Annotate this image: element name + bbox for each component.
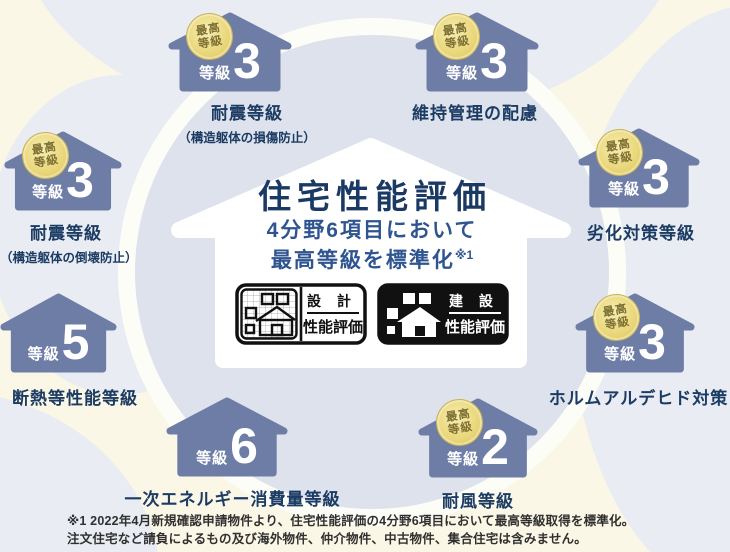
house-maintenance: 最高等級 等級3 [415, 12, 539, 92]
grade-text: 等級3 [4, 155, 122, 205]
construction-mark-category: 建 設 [449, 293, 499, 309]
design-mark-label: 性能評価 [303, 318, 363, 336]
subtitle-line2: 最高等級を標準化 [271, 249, 455, 272]
house-energy: 等級6 [166, 397, 288, 477]
footnote-reference: ※1 [455, 248, 473, 262]
house-label-energy: 一次エネルギー消費量等級 [115, 485, 350, 510]
house-seismic-damage: 最高等級 等級3 [168, 12, 292, 92]
house-label-insulation: 断熱等性能等級 [0, 384, 150, 409]
house-wind: 最高等級 等級2 [418, 398, 538, 478]
house-label-degradation: 劣化対策等級 [566, 219, 716, 244]
house-label-seismic-collapse: 耐震等級 （構造躯体の倒壊防止） [0, 219, 132, 266]
background-graphic [0, 0, 730, 552]
footnote: ※1 2022年4月新規確認申請物件より、住宅性能評価の4分野6項目において最高… [67, 513, 707, 549]
page-title: 住宅性能評価 [221, 170, 523, 218]
grade-text: 等級2 [418, 422, 538, 472]
grade-text: 等級3 [575, 317, 695, 367]
construction-performance-evaluation-mark-icon: 建 設 性能評価 [377, 283, 509, 345]
house-label-wind: 耐風等級 [406, 487, 550, 512]
grade-text: 等級6 [166, 421, 288, 471]
subtitle-line1: 4分野6項目において [267, 219, 478, 242]
certification-marks: 設 計 性能評価 建 設 性能評価 [221, 283, 523, 345]
housing-performance-infographic: 住宅性能評価 4分野6項目において 最高等級を標準化※1 [0, 0, 730, 552]
grade-text: 等級3 [415, 36, 539, 86]
house-degradation: 最高等級 等級3 [578, 128, 700, 208]
footnote-line2: 注文住宅など請負によるもの及び海外物件、仲介物件、中古物件、集合住宅は含みません… [67, 531, 707, 549]
design-performance-evaluation-mark-icon: 設 計 性能評価 [235, 283, 367, 345]
construction-mark-label: 性能評価 [445, 318, 505, 336]
house-formaldehyde: 最高等級 等級3 [575, 293, 695, 373]
footnote-line1: ※1 2022年4月新規確認申請物件より、住宅性能評価の4分野6項目において最高… [67, 513, 707, 531]
grade-text: 等級3 [578, 152, 700, 202]
house-label-seismic-damage: 耐震等級 （構造躯体の損傷防止） [157, 99, 337, 146]
house-insulation: 等級5 [0, 293, 117, 373]
house-seismic-collapse: 最高等級 等級3 [4, 131, 122, 211]
house-label-maintenance: 維持管理の配慮 [385, 99, 565, 124]
design-mark-category: 設 計 [307, 293, 357, 309]
grade-text: 等級5 [0, 317, 117, 367]
house-label-formaldehyde: ホルムアルデヒド対策 [547, 384, 730, 409]
grade-text: 等級3 [168, 36, 292, 86]
center-subtitle: 4分野6項目において 最高等級を標準化※1 [191, 216, 553, 276]
